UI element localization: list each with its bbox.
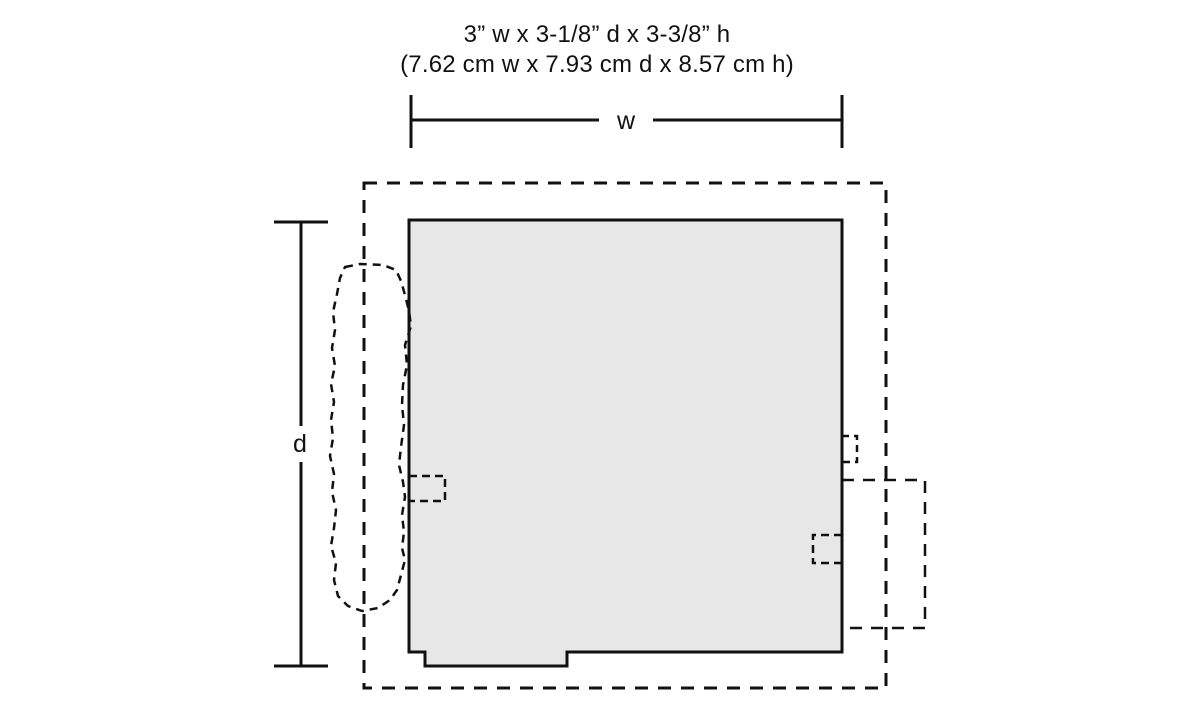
right-extension-outline xyxy=(842,480,925,628)
left-terrain-outline xyxy=(330,264,411,611)
footprint-diagram: 3” w x 3-1/8” d x 3-3/8” h (7.62 cm w x … xyxy=(0,0,1200,709)
width-dimension-label: w xyxy=(616,107,636,135)
diagram-svg: w d xyxy=(0,0,1200,709)
depth-dimension-label: d xyxy=(293,430,307,458)
building-footprint-shape xyxy=(409,220,842,666)
right-edge-outer-detail-outline xyxy=(842,436,857,462)
